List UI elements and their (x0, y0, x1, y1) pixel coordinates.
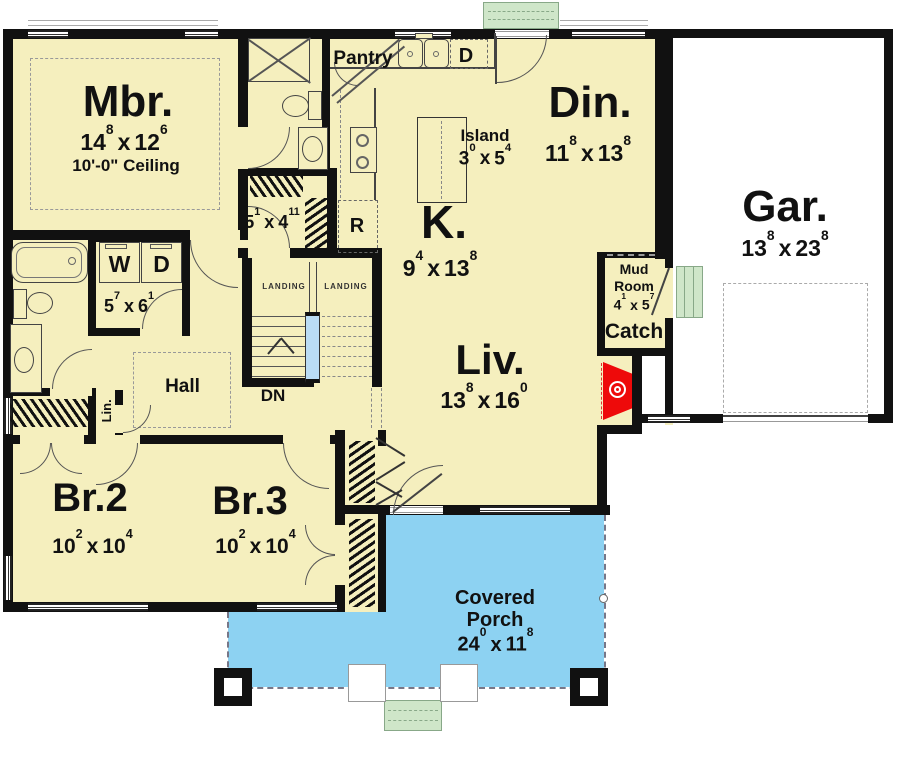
laundry-dimensions: 57x61 (96, 297, 162, 316)
stair-tread (322, 366, 372, 367)
stoop-line (488, 19, 554, 20)
wall (648, 29, 893, 38)
mudroom-dimensions: 41x57 (602, 297, 666, 312)
faucet (415, 33, 433, 39)
toilet (27, 292, 53, 314)
toilet-tank (308, 91, 322, 120)
master-closet-dimensions: 51x411 (238, 213, 306, 232)
garage-door-panel (723, 415, 868, 417)
wall (3, 29, 13, 612)
entry-stoop (483, 2, 559, 29)
stair-tread (252, 346, 305, 347)
stair-tread (252, 336, 305, 337)
sink-drain (433, 51, 439, 57)
door-opening (238, 127, 248, 169)
stairs-down-label: DN (250, 387, 296, 405)
window (257, 603, 337, 611)
br3-dimensions: 102x104 (188, 535, 323, 558)
porch-post (348, 664, 386, 702)
stair-tread (322, 326, 372, 327)
landing-label: LANDING (256, 283, 312, 291)
porch-post (440, 664, 478, 702)
wall (884, 29, 893, 423)
stair-divider (316, 262, 317, 312)
closet-rod (10, 399, 88, 427)
pantry-label: Pantry (329, 49, 397, 69)
wall (378, 512, 386, 612)
stair-tread (252, 356, 305, 357)
door-opening (115, 405, 123, 433)
garage-parking-outline (723, 283, 868, 413)
porch-dimensions: 240x118 (428, 633, 563, 656)
mbr-ceiling-note: 10'-0" Ceiling (46, 157, 206, 175)
window (28, 30, 68, 38)
gar-label: Gar. (715, 184, 855, 230)
stoop-line (488, 11, 554, 12)
stair-break-line (371, 388, 372, 428)
porch-label-line1: Covered (430, 588, 560, 609)
mbr-label: Mbr. (48, 79, 208, 125)
window (480, 506, 570, 514)
din-label: Din. (520, 80, 660, 126)
toilet (282, 95, 309, 117)
wall (597, 430, 607, 515)
island-dash (441, 121, 442, 199)
wall (242, 248, 252, 387)
br3-label: Br.3 (185, 480, 315, 522)
wall (88, 233, 190, 242)
br2-dimensions: 102x104 (25, 535, 160, 558)
br2-label: Br.2 (25, 477, 155, 519)
counter-edge (494, 33, 496, 69)
stair-tread (322, 316, 372, 317)
stoop-line (693, 266, 694, 318)
sink-drain (407, 51, 413, 57)
kitchen-dimensions: 94x138 (380, 256, 500, 280)
stair-tread (252, 376, 305, 377)
fireplace-ring (614, 386, 621, 393)
stair-break-line (381, 388, 382, 428)
porch-detail (599, 594, 608, 603)
porch-post (570, 668, 608, 706)
window (572, 30, 645, 38)
window (185, 30, 218, 38)
stoop-line (388, 710, 438, 711)
liv-label: Liv. (420, 338, 560, 382)
wall (182, 233, 190, 336)
door-opening (335, 525, 345, 585)
porch-post (214, 668, 252, 706)
stair-tread (322, 376, 372, 377)
washer-controls (105, 244, 127, 249)
floor-plan: Mbr. 148x126 10'-0" Ceiling Din. 118x138… (0, 0, 900, 759)
kitchen-label: K. (404, 198, 484, 246)
catch-label: Catch (597, 321, 671, 343)
exterior-cutout (607, 434, 642, 515)
mudroom-label-line1: Mud (606, 262, 662, 277)
hall-label: Hall (145, 377, 220, 397)
wall (632, 352, 642, 434)
gar-dimensions: 138x238 (715, 236, 855, 260)
stair-tread (322, 346, 372, 347)
landing-label: LANDING (318, 283, 374, 291)
dryer-controls (150, 244, 172, 249)
eave-line (28, 20, 218, 21)
wall (238, 29, 248, 127)
eave-line (560, 25, 648, 26)
liv-dimensions: 138x160 (418, 388, 550, 412)
door-opening (190, 230, 240, 240)
closet-rod (250, 173, 303, 197)
stair-rail (305, 312, 320, 383)
fridge-label: R (338, 216, 376, 237)
island-dimensions: 30x54 (447, 149, 523, 169)
eave-line (560, 20, 648, 21)
door-opening (50, 388, 92, 396)
door-opening (140, 328, 182, 336)
fireplace-dash (601, 363, 602, 419)
window (28, 603, 148, 611)
wall (597, 425, 642, 434)
tub-drain (68, 257, 76, 265)
wall (327, 168, 337, 256)
burner (356, 134, 369, 147)
sink-bowl (14, 347, 34, 373)
wall (88, 233, 96, 336)
porch-steps (384, 700, 442, 731)
window (648, 415, 690, 423)
porch-edge (227, 687, 606, 689)
closet-rod (305, 198, 327, 250)
window (4, 556, 12, 600)
washer-label: W (99, 252, 140, 276)
sink-bowl (302, 136, 323, 162)
door-opening (248, 248, 290, 258)
garage-door-panel (723, 421, 868, 422)
eave-line (28, 25, 218, 26)
stair-tread (322, 336, 372, 337)
closet-rod (349, 441, 375, 503)
stair-tread (252, 366, 305, 367)
burner (356, 156, 369, 169)
porch-label-line2: Porch (430, 610, 560, 631)
din-dimensions: 118x138 (518, 141, 658, 165)
counter-dash (340, 90, 341, 198)
stair-tread (252, 326, 305, 327)
mbr-dimensions: 148x126 (44, 130, 204, 154)
linen-label: Lin. (100, 390, 114, 432)
mudroom-label-line2: Room (602, 279, 666, 294)
threshold-line (495, 31, 549, 32)
mudroom-opening-dash (607, 254, 655, 256)
stair-tread (252, 316, 305, 317)
garage-stoop (676, 266, 703, 318)
dryer-label: D (141, 252, 182, 276)
toilet-tank (13, 289, 27, 319)
stoop-line (388, 720, 438, 721)
stair-tread (322, 356, 372, 357)
closet-rod (349, 519, 375, 607)
dishwasher-label: D (448, 46, 484, 67)
stoop-line (684, 266, 685, 318)
